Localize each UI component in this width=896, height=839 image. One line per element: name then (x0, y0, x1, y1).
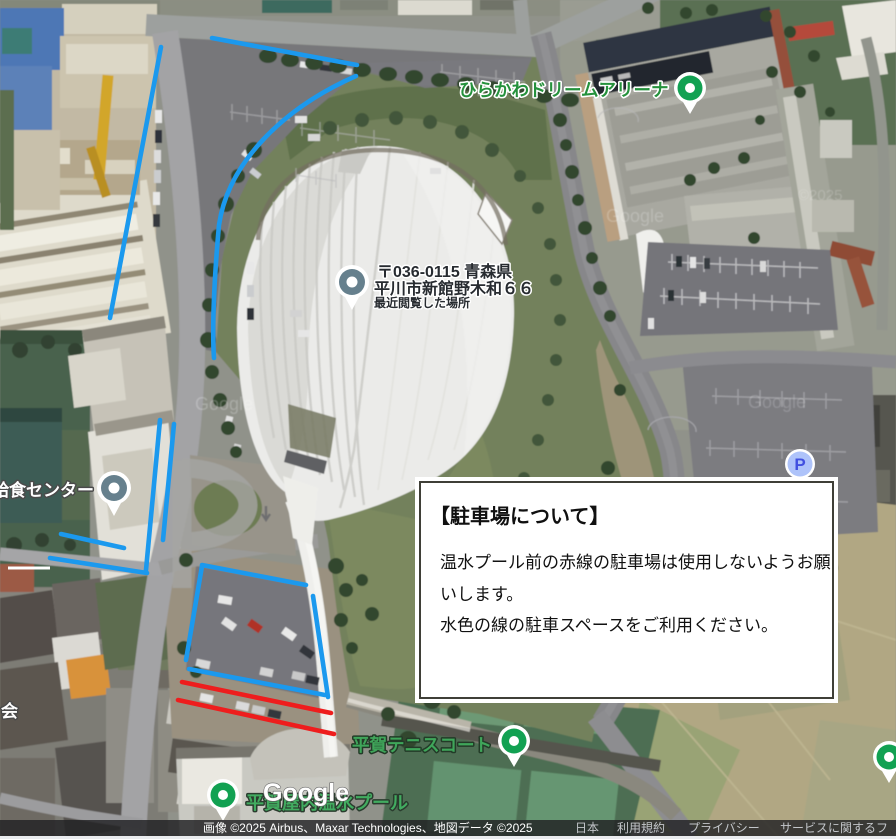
svg-text:平賀テニスコート: 平賀テニスコート (352, 735, 492, 755)
svg-text:会: 会 (1, 701, 18, 721)
svg-text:ひらかわドリームアリーナ: ひらかわドリームアリーナ (459, 80, 668, 100)
svg-text:Google: Google (606, 206, 664, 226)
svg-text:P: P (794, 455, 805, 474)
svg-text:Google: Google (748, 392, 806, 412)
svg-text:Google: Google (195, 394, 253, 414)
svg-text:Google: Google (263, 779, 349, 807)
svg-text:給食センター: 給食センター (0, 480, 94, 500)
svg-text:〒036-0115 青森県: 〒036-0115 青森県 (377, 262, 512, 281)
svg-text:最近閲覧した場所: 最近閲覧した場所 (374, 295, 470, 310)
svg-text:©2025: ©2025 (798, 187, 842, 204)
